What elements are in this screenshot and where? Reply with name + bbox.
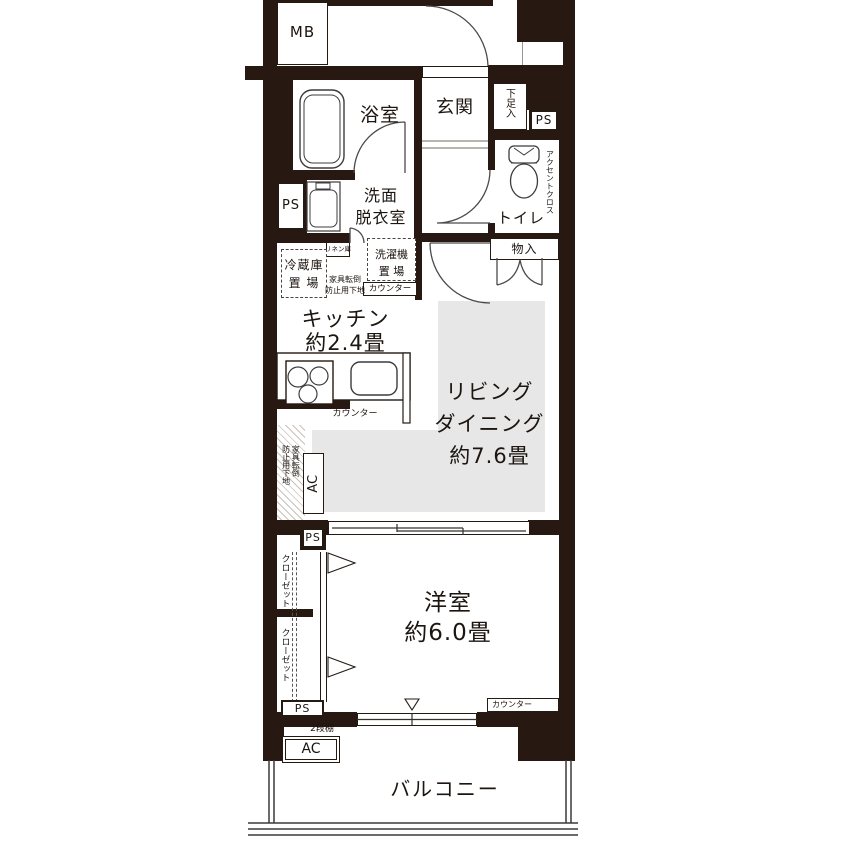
washroom-door-arc xyxy=(350,228,364,243)
living-label-line1: リビング xyxy=(432,381,547,403)
closet-door-symbol xyxy=(328,553,355,573)
kitchen-counter-return xyxy=(403,353,410,423)
kitchen-label-line1: キッチン xyxy=(283,308,408,330)
fixtures-overlay xyxy=(0,0,842,842)
anti-tip-label-line1: 家具転倒 xyxy=(322,276,368,284)
meter-box-label: MB xyxy=(277,25,328,41)
bath-label: 浴室 xyxy=(340,106,420,126)
closet-label-2: クローゼット xyxy=(279,628,288,682)
accent-cross-label: アクセントクロス xyxy=(545,150,553,214)
anti-tip-label-line2: 防止用下地 xyxy=(322,287,368,295)
storage-door-arcs xyxy=(497,258,542,285)
window-lines xyxy=(357,714,477,725)
shelf-label: 2段棚 xyxy=(299,725,345,734)
balcony-rail-bottom xyxy=(248,823,578,835)
living-door-arc xyxy=(430,243,490,303)
stove-burner xyxy=(288,367,308,387)
living-label-line3: 約7.6畳 xyxy=(432,445,547,467)
washbasin-bowl xyxy=(310,190,337,227)
toilet-label: トイレ xyxy=(490,211,552,227)
washer-label-line2: 置 場 xyxy=(367,266,416,278)
anti-tip-vertical-line1: 家具転倒 xyxy=(291,445,301,501)
entrance-step-lines xyxy=(422,141,488,148)
fridge-label-line1: 冷蔵庫 xyxy=(281,259,327,272)
balcony-label: バルコニー xyxy=(370,779,520,800)
entrance-label: 玄関 xyxy=(422,99,488,118)
balcony-rail-right xyxy=(566,760,571,823)
stove-burner xyxy=(299,385,317,403)
window-center-marker xyxy=(405,699,419,710)
living-label-line2: ダイニング xyxy=(432,413,547,435)
kitchen-counter-label: カウンター xyxy=(320,410,390,419)
sliding-door-tracks xyxy=(332,524,526,535)
toilet-door-arc xyxy=(437,170,490,223)
washroom-label-line1: 洗面 xyxy=(336,188,426,205)
fridge-label-line2: 置 場 xyxy=(281,277,327,290)
stove-burner xyxy=(310,367,328,385)
washbasin-faucet xyxy=(316,183,330,189)
floor-plan: PS PS 物入 リネン庫 カウンター AC PS PS カウンター AC xyxy=(0,0,842,842)
shoe-cabinet-label: 下足入 xyxy=(503,88,514,118)
washroom-label-line2: 脱衣室 xyxy=(336,210,426,227)
toilet-bowl xyxy=(511,164,538,198)
bedroom-label-line1: 洋室 xyxy=(378,591,518,615)
kitchen-sink xyxy=(351,362,397,395)
anti-tip-vertical-line2: 防止用下地 xyxy=(281,445,291,501)
bath-door-arc xyxy=(354,122,405,173)
entrance-door-arc xyxy=(426,6,488,66)
bedroom-label-line2: 約6.0畳 xyxy=(378,621,518,645)
bathtub-inner xyxy=(304,95,340,163)
washer-label-line1: 洗濯機 xyxy=(367,249,416,261)
anti-tip-vertical-label: 家具転倒 防止用下地 xyxy=(281,445,300,501)
balcony-rail-left xyxy=(269,760,274,823)
closet-door-symbol xyxy=(328,657,355,677)
closet-label-1: クローゼット xyxy=(279,554,288,608)
kitchen-label-line2: 約2.4畳 xyxy=(283,332,408,354)
